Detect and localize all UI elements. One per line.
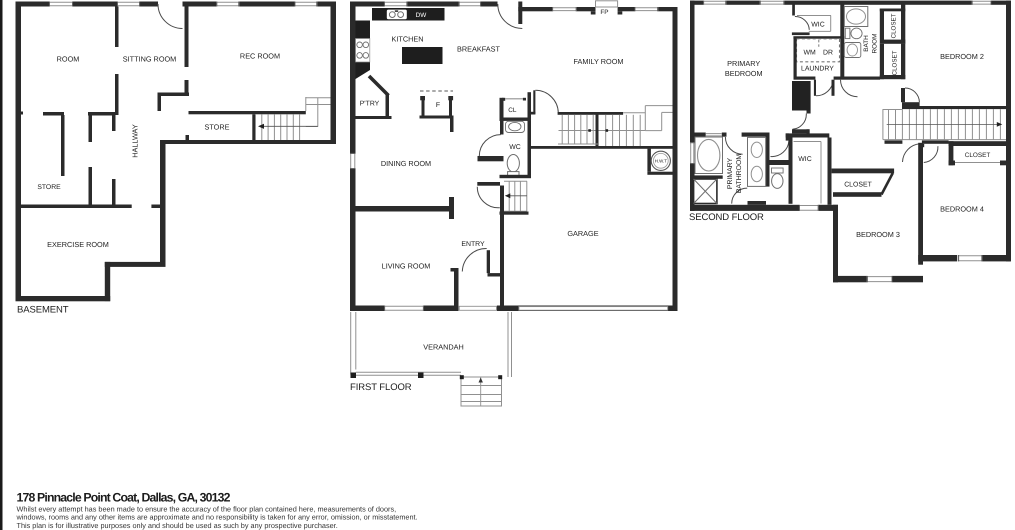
svg-text:DW: DW [416, 12, 428, 19]
svg-text:WIC: WIC [811, 21, 824, 28]
svg-text:BASEMENT: BASEMENT [17, 305, 69, 316]
svg-text:BEDROOM: BEDROOM [725, 69, 763, 78]
svg-text:BEDROOM 4: BEDROOM 4 [940, 204, 984, 213]
svg-text:F: F [436, 102, 440, 109]
svg-text:VERANDAH: VERANDAH [423, 343, 464, 352]
svg-text:HALLWAY: HALLWAY [131, 124, 140, 158]
svg-text:CLOSET: CLOSET [844, 182, 872, 189]
svg-text:DR: DR [823, 50, 833, 57]
svg-text:P'TRY: P'TRY [360, 101, 380, 108]
svg-text:REC ROOM: REC ROOM [240, 52, 280, 61]
svg-text:DINING ROOM: DINING ROOM [381, 159, 431, 168]
svg-text:STORE: STORE [204, 123, 229, 132]
svg-text:FP: FP [600, 9, 608, 16]
svg-text:FAMILY ROOM: FAMILY ROOM [573, 57, 623, 66]
svg-text:WIC: WIC [798, 156, 811, 163]
svg-text:ROOM: ROOM [57, 55, 80, 64]
svg-text:PRIMARY: PRIMARY [727, 59, 760, 68]
svg-text:ROOM: ROOM [872, 34, 879, 54]
svg-text:BEDROOM 2: BEDROOM 2 [940, 52, 984, 61]
svg-text:KITCHEN: KITCHEN [391, 35, 423, 44]
svg-text:SECOND FLOOR: SECOND FLOOR [689, 212, 764, 223]
svg-text:GARAGE: GARAGE [567, 229, 598, 238]
svg-text:PRIMARY: PRIMARY [727, 157, 734, 189]
svg-text:FIRST FLOOR: FIRST FLOOR [350, 382, 412, 393]
svg-text:CLOSET: CLOSET [890, 13, 897, 38]
svg-text:WM: WM [803, 50, 816, 57]
svg-text:SITTING ROOM: SITTING ROOM [123, 55, 177, 64]
svg-text:BREAKFAST: BREAKFAST [457, 45, 501, 54]
svg-text:This plan is for illustrative: This plan is for illustrative purposes o… [17, 521, 338, 530]
svg-text:BEDROOM 3: BEDROOM 3 [856, 230, 900, 239]
svg-text:BATH: BATH [863, 35, 870, 52]
svg-text:BATHROOM: BATHROOM [736, 154, 743, 194]
svg-text:CLOSET: CLOSET [965, 152, 991, 159]
svg-text:CL: CL [508, 107, 517, 114]
svg-text:LIVING ROOM: LIVING ROOM [382, 262, 431, 271]
svg-text:LAUNDRY: LAUNDRY [801, 65, 834, 72]
svg-text:CLOSET: CLOSET [892, 50, 899, 75]
svg-text:WC: WC [509, 144, 521, 151]
svg-text:H.W.T: H.W.T [655, 159, 668, 164]
svg-text:ENTRY: ENTRY [461, 241, 485, 248]
svg-text:EXERCISE ROOM: EXERCISE ROOM [47, 240, 109, 249]
svg-text:178 Pinnacle Point Coat, Dalla: 178 Pinnacle Point Coat, Dallas, GA, 301… [17, 491, 231, 505]
svg-text:STORE: STORE [37, 184, 61, 191]
